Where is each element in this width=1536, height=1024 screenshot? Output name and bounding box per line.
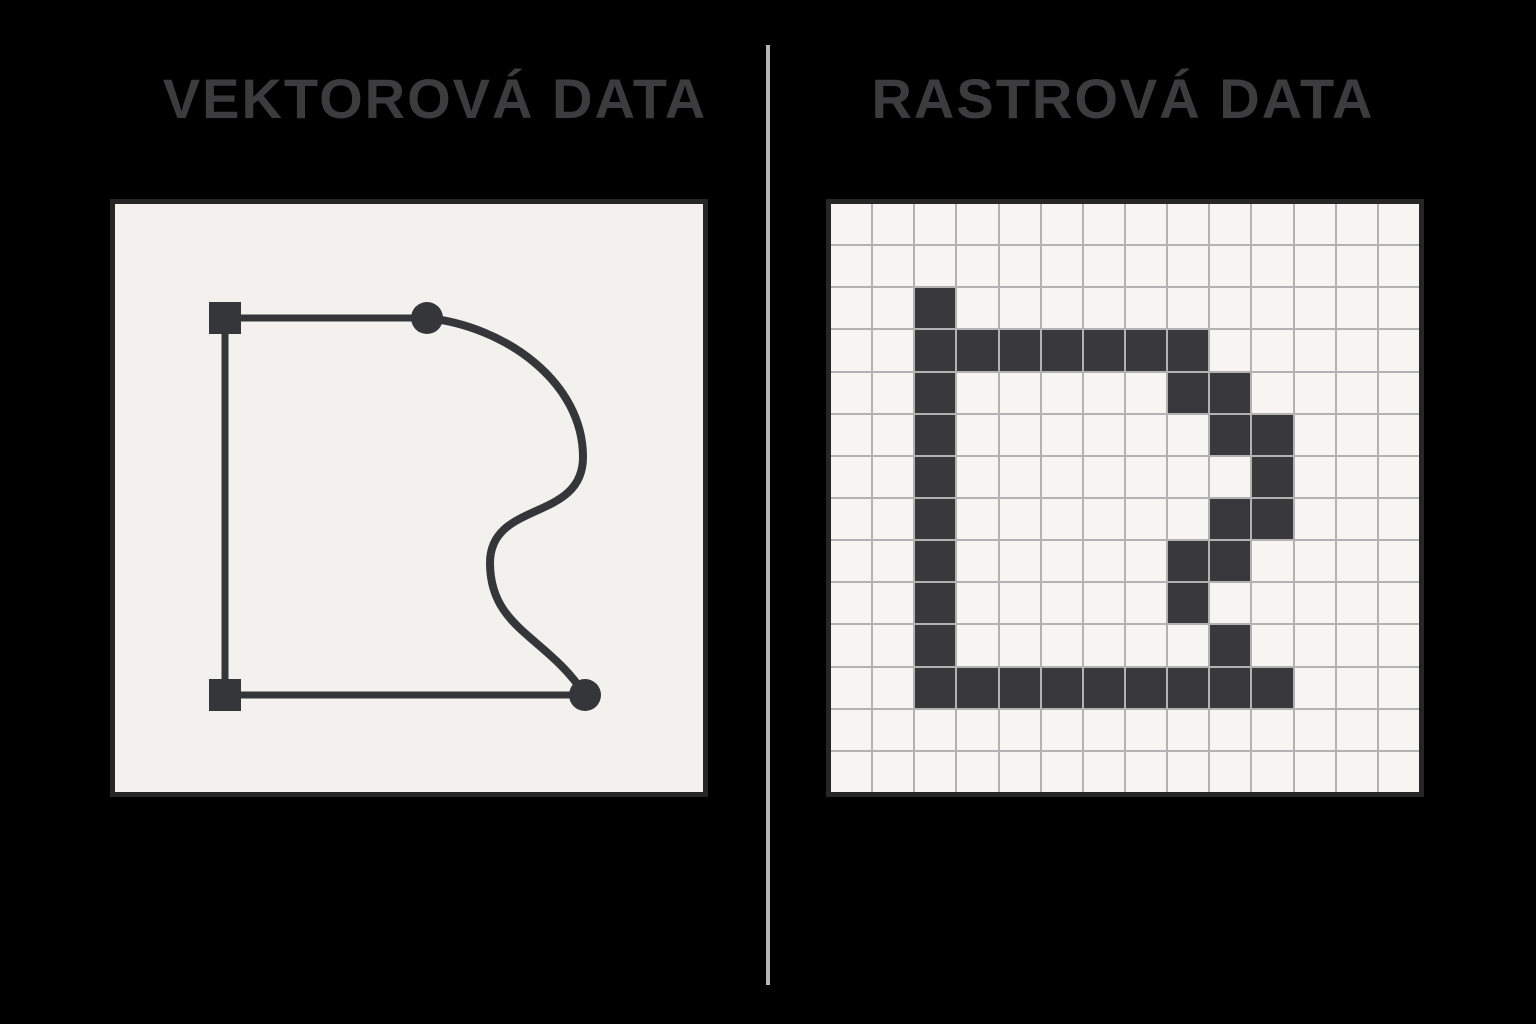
raster-pixel-empty	[1337, 288, 1377, 328]
raster-pixel-filled	[1000, 330, 1040, 370]
raster-pixel-empty	[1295, 204, 1335, 244]
raster-pixel-empty	[957, 583, 997, 623]
raster-pixel-filled	[915, 541, 955, 581]
raster-pixel-empty	[831, 415, 871, 455]
raster-pixel-filled	[1252, 668, 1292, 708]
raster-pixel-filled	[915, 373, 955, 413]
raster-pixel-empty	[1295, 541, 1335, 581]
raster-pixel-empty	[1379, 710, 1419, 750]
raster-pixel-empty	[1337, 752, 1377, 792]
raster-pixel-empty	[831, 246, 871, 286]
raster-pixel-filled	[1252, 415, 1292, 455]
raster-pixel-empty	[1042, 288, 1082, 328]
raster-pixel-empty	[1379, 204, 1419, 244]
raster-pixel-empty	[1168, 457, 1208, 497]
raster-pixel-filled	[1168, 330, 1208, 370]
raster-pixel-empty	[1042, 204, 1082, 244]
square-anchor-point	[209, 302, 241, 334]
raster-pixel-empty	[1042, 373, 1082, 413]
raster-pixel-empty	[1337, 625, 1377, 665]
raster-pixel-empty	[1084, 752, 1124, 792]
raster-pixel-empty	[957, 415, 997, 455]
raster-pixel-filled	[1126, 668, 1166, 708]
raster-pixel-empty	[1168, 625, 1208, 665]
raster-pixel-empty	[831, 541, 871, 581]
raster-pixel-empty	[1337, 499, 1377, 539]
raster-data-title: RASTROVÁ DATA	[723, 68, 1523, 130]
raster-pixel-empty	[1084, 288, 1124, 328]
raster-pixel-empty	[873, 204, 913, 244]
round-anchor-point	[569, 679, 601, 711]
raster-pixel-empty	[957, 457, 997, 497]
raster-pixel-filled	[1168, 373, 1208, 413]
raster-pixel-empty	[1210, 204, 1250, 244]
raster-pixel-empty	[1252, 752, 1292, 792]
raster-pixel-filled	[1210, 373, 1250, 413]
raster-pixel-empty	[1084, 373, 1124, 413]
raster-pixel-empty	[1084, 625, 1124, 665]
raster-pixel-empty	[1337, 415, 1377, 455]
raster-pixel-empty	[1295, 710, 1335, 750]
raster-pixel-empty	[1295, 752, 1335, 792]
raster-pixel-empty	[1252, 330, 1292, 370]
raster-pixel-empty	[873, 457, 913, 497]
raster-pixel-empty	[1295, 583, 1335, 623]
raster-pixel-empty	[1042, 710, 1082, 750]
raster-pixel-empty	[957, 288, 997, 328]
raster-pixel-filled	[1252, 457, 1292, 497]
raster-pixel-empty	[1337, 373, 1377, 413]
raster-pixel-empty	[957, 246, 997, 286]
raster-pixel-empty	[873, 246, 913, 286]
raster-pixel-filled	[1168, 668, 1208, 708]
comparison-diagram: VEKTOROVÁ DATA RASTROVÁ DATA	[0, 0, 1536, 1024]
raster-pixel-empty	[915, 710, 955, 750]
raster-pixel-empty	[1042, 625, 1082, 665]
raster-pixel-empty	[1210, 288, 1250, 328]
raster-pixel-filled	[1084, 668, 1124, 708]
raster-pixel-empty	[1126, 246, 1166, 286]
pixel-grid	[831, 204, 1419, 792]
raster-pixel-empty	[1084, 710, 1124, 750]
raster-pixel-empty	[1126, 583, 1166, 623]
raster-pixel-empty	[1379, 457, 1419, 497]
raster-pixel-empty	[1000, 288, 1040, 328]
raster-pixel-empty	[1210, 246, 1250, 286]
raster-pixel-empty	[1126, 457, 1166, 497]
raster-pixel-filled	[1210, 625, 1250, 665]
raster-pixel-empty	[1295, 668, 1335, 708]
raster-pixel-empty	[1042, 541, 1082, 581]
raster-pixel-empty	[1042, 246, 1082, 286]
raster-pixel-filled	[915, 330, 955, 370]
raster-pixel-empty	[831, 373, 871, 413]
raster-pixel-empty	[873, 373, 913, 413]
raster-pixel-filled	[1210, 415, 1250, 455]
raster-pixel-empty	[1168, 710, 1208, 750]
raster-pixel-filled	[1210, 541, 1250, 581]
raster-pixel-empty	[1084, 415, 1124, 455]
raster-pixel-empty	[1379, 752, 1419, 792]
raster-pixel-filled	[1210, 499, 1250, 539]
raster-pixel-empty	[1337, 330, 1377, 370]
raster-pixel-empty	[1210, 330, 1250, 370]
raster-pixel-filled	[1168, 583, 1208, 623]
raster-pixel-empty	[1000, 457, 1040, 497]
raster-pixel-empty	[1084, 499, 1124, 539]
raster-pixel-empty	[873, 668, 913, 708]
raster-pixel-empty	[1000, 583, 1040, 623]
raster-pixel-empty	[1168, 288, 1208, 328]
raster-pixel-empty	[1168, 499, 1208, 539]
raster-pixel-filled	[915, 415, 955, 455]
raster-pixel-empty	[1126, 541, 1166, 581]
raster-pixel-empty	[1126, 625, 1166, 665]
raster-pixel-empty	[1126, 204, 1166, 244]
raster-pixel-empty	[915, 204, 955, 244]
raster-pixel-empty	[1337, 246, 1377, 286]
raster-pixel-empty	[1084, 583, 1124, 623]
raster-pixel-empty	[1126, 373, 1166, 413]
raster-pixel-filled	[957, 330, 997, 370]
raster-pixel-filled	[1210, 668, 1250, 708]
raster-pixel-empty	[1337, 457, 1377, 497]
raster-pixel-empty	[1252, 204, 1292, 244]
raster-pixel-filled	[915, 288, 955, 328]
raster-pixel-empty	[1252, 583, 1292, 623]
raster-pixel-empty	[1379, 583, 1419, 623]
raster-pixel-empty	[1295, 415, 1335, 455]
raster-pixel-empty	[957, 499, 997, 539]
raster-pixel-empty	[1126, 288, 1166, 328]
raster-pixel-empty	[1379, 288, 1419, 328]
raster-pixel-empty	[1000, 625, 1040, 665]
raster-pixel-empty	[831, 288, 871, 328]
raster-pixel-empty	[1252, 710, 1292, 750]
raster-pixel-empty	[1042, 457, 1082, 497]
raster-pixel-empty	[1084, 246, 1124, 286]
raster-pixel-empty	[915, 246, 955, 286]
bezier-curve	[427, 318, 585, 695]
raster-pixel-empty	[1000, 499, 1040, 539]
raster-pixel-empty	[1126, 752, 1166, 792]
raster-pixel-empty	[1000, 710, 1040, 750]
raster-pixel-empty	[1252, 541, 1292, 581]
raster-pixel-filled	[915, 668, 955, 708]
raster-pixel-empty	[1295, 457, 1335, 497]
raster-pixel-empty	[1042, 415, 1082, 455]
raster-pixel-empty	[1126, 499, 1166, 539]
raster-pixel-empty	[873, 752, 913, 792]
raster-pixel-empty	[1000, 415, 1040, 455]
raster-data-card	[826, 199, 1424, 797]
raster-pixel-empty	[1084, 541, 1124, 581]
raster-pixel-empty	[1252, 288, 1292, 328]
raster-pixel-empty	[1084, 457, 1124, 497]
raster-pixel-empty	[1210, 710, 1250, 750]
raster-pixel-empty	[873, 415, 913, 455]
raster-pixel-empty	[1084, 204, 1124, 244]
raster-pixel-empty	[831, 330, 871, 370]
raster-pixel-empty	[873, 583, 913, 623]
raster-pixel-empty	[957, 625, 997, 665]
raster-pixel-empty	[1337, 541, 1377, 581]
raster-pixel-empty	[831, 710, 871, 750]
raster-pixel-filled	[1252, 499, 1292, 539]
raster-pixel-empty	[831, 752, 871, 792]
raster-pixel-empty	[957, 204, 997, 244]
raster-pixel-empty	[831, 204, 871, 244]
raster-pixel-empty	[873, 330, 913, 370]
raster-pixel-empty	[1126, 415, 1166, 455]
raster-pixel-empty	[1295, 499, 1335, 539]
raster-pixel-empty	[1042, 583, 1082, 623]
raster-pixel-empty	[1252, 625, 1292, 665]
raster-pixel-empty	[1337, 668, 1377, 708]
raster-pixel-empty	[873, 625, 913, 665]
raster-pixel-empty	[831, 583, 871, 623]
raster-pixel-empty	[1379, 415, 1419, 455]
square-anchor-point	[209, 679, 241, 711]
raster-pixel-empty	[1210, 752, 1250, 792]
vector-letter-r-graphic	[115, 204, 703, 792]
raster-pixel-empty	[1168, 204, 1208, 244]
raster-pixel-empty	[1379, 541, 1419, 581]
raster-pixel-empty	[1168, 752, 1208, 792]
raster-pixel-empty	[1379, 668, 1419, 708]
raster-pixel-empty	[1379, 246, 1419, 286]
raster-pixel-filled	[1126, 330, 1166, 370]
raster-pixel-filled	[915, 625, 955, 665]
raster-pixel-empty	[873, 499, 913, 539]
raster-pixel-empty	[1168, 246, 1208, 286]
raster-pixel-filled	[957, 668, 997, 708]
raster-pixel-empty	[1000, 373, 1040, 413]
raster-pixel-empty	[957, 752, 997, 792]
raster-pixel-empty	[1042, 752, 1082, 792]
raster-pixel-filled	[915, 457, 955, 497]
raster-pixel-empty	[957, 710, 997, 750]
raster-pixel-empty	[1126, 710, 1166, 750]
raster-pixel-empty	[873, 710, 913, 750]
raster-pixel-empty	[1000, 541, 1040, 581]
raster-pixel-empty	[1337, 710, 1377, 750]
raster-pixel-empty	[1252, 373, 1292, 413]
raster-pixel-empty	[831, 625, 871, 665]
vector-data-card	[110, 199, 708, 797]
raster-pixel-empty	[1210, 583, 1250, 623]
raster-pixel-empty	[1295, 625, 1335, 665]
raster-pixel-empty	[873, 288, 913, 328]
raster-pixel-empty	[1252, 246, 1292, 286]
raster-pixel-empty	[1295, 373, 1335, 413]
raster-pixel-filled	[1084, 330, 1124, 370]
raster-pixel-empty	[1295, 330, 1335, 370]
raster-pixel-empty	[915, 752, 955, 792]
raster-pixel-empty	[831, 457, 871, 497]
raster-pixel-empty	[1000, 752, 1040, 792]
raster-pixel-empty	[1379, 373, 1419, 413]
raster-pixel-filled	[915, 499, 955, 539]
raster-pixel-filled	[1168, 541, 1208, 581]
raster-pixel-empty	[1000, 246, 1040, 286]
raster-pixel-empty	[1295, 246, 1335, 286]
raster-pixel-empty	[1379, 330, 1419, 370]
raster-pixel-empty	[831, 668, 871, 708]
raster-pixel-empty	[831, 499, 871, 539]
raster-pixel-empty	[1337, 204, 1377, 244]
raster-pixel-empty	[1337, 583, 1377, 623]
raster-pixel-filled	[915, 583, 955, 623]
raster-pixel-filled	[1000, 668, 1040, 708]
raster-pixel-filled	[1042, 668, 1082, 708]
panel-divider-line	[766, 45, 770, 985]
raster-pixel-empty	[957, 373, 997, 413]
raster-pixel-empty	[1042, 499, 1082, 539]
raster-pixel-empty	[873, 541, 913, 581]
raster-pixel-empty	[1000, 204, 1040, 244]
raster-pixel-empty	[1210, 457, 1250, 497]
vector-data-title: VEKTOROVÁ DATA	[35, 68, 835, 130]
raster-pixel-empty	[957, 541, 997, 581]
raster-pixel-filled	[1042, 330, 1082, 370]
raster-pixel-empty	[1295, 288, 1335, 328]
round-anchor-point	[411, 302, 443, 334]
raster-pixel-empty	[1168, 415, 1208, 455]
raster-pixel-empty	[1379, 499, 1419, 539]
raster-pixel-empty	[1379, 625, 1419, 665]
